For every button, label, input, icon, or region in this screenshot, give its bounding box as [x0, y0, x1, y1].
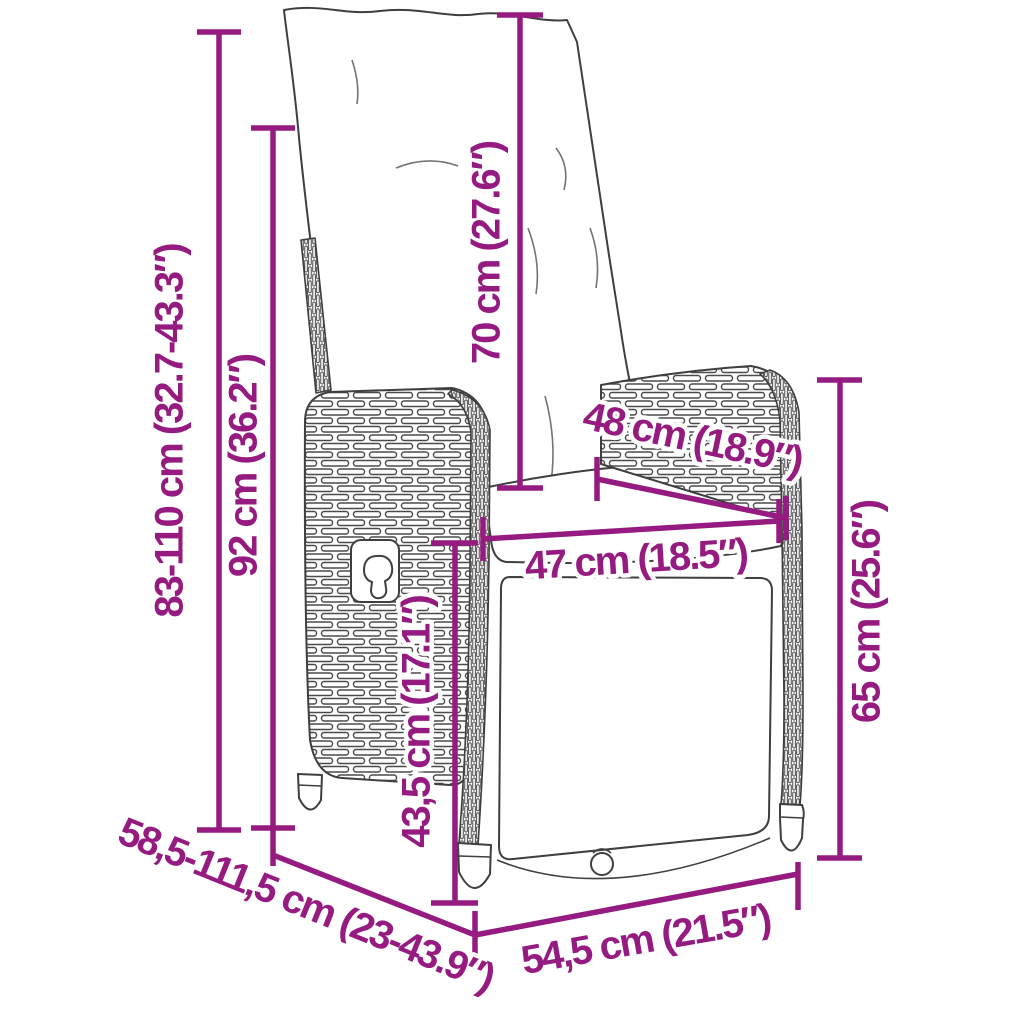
dimension-base-width: 54,5 cm (21.5″)	[475, 862, 798, 983]
left-front-foot-band	[459, 856, 490, 857]
caster-wheel	[591, 853, 613, 875]
footrest-panel	[499, 577, 772, 859]
dimension-label-side-height: 65 cm (25.6″)	[845, 500, 889, 723]
dimension-label-height-adjustable: 83-110 cm (32.7-43.3″)	[148, 244, 192, 618]
rear-left-foot	[298, 774, 322, 810]
rear-left-foot-band	[298, 785, 321, 786]
dimension-diagram: 83-110 cm (32.7-43.3″) 92 cm (36.2″) 70 …	[0, 0, 1024, 1024]
right-front-foot	[780, 804, 804, 851]
dimension-side-height: 65 cm (25.6″)	[817, 380, 889, 858]
dimension-label-backrest-length: 92 cm (36.2″)	[222, 354, 266, 577]
right-front-foot-band	[780, 817, 803, 818]
diagram-canvas: 83-110 cm (32.7-43.3″) 92 cm (36.2″) 70 …	[0, 0, 1024, 1024]
dimension-backrest-length: 92 cm (36.2″)	[222, 128, 295, 866]
dimension-label-footrest-length: 43,5 cm (17.1″)	[395, 596, 439, 848]
dimension-label-base-width: 54,5 cm (21.5″)	[518, 896, 774, 983]
dimension-label-cushion-length: 70 cm (27.6″)	[465, 141, 509, 364]
left-front-foot	[458, 843, 491, 888]
